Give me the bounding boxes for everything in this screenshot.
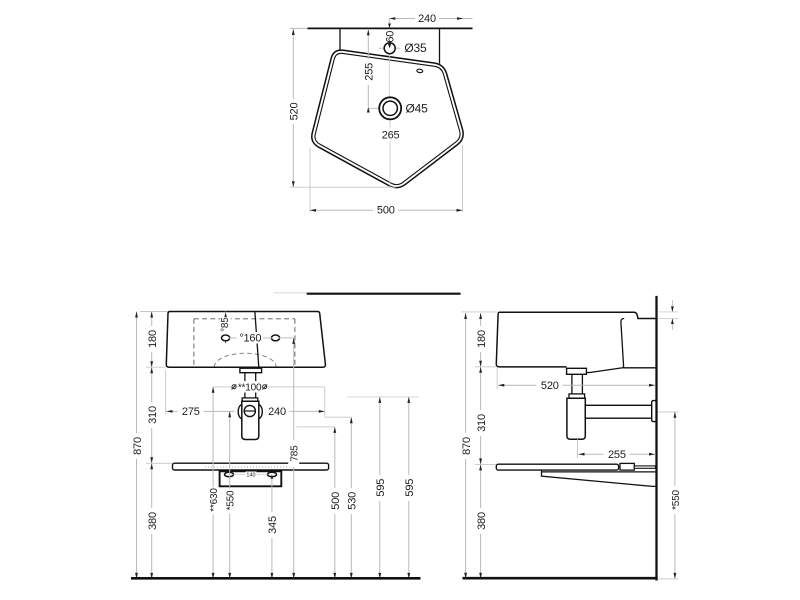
svg-text:310: 310 (147, 406, 159, 424)
svg-text:520: 520 (541, 380, 559, 392)
svg-text:380: 380 (476, 512, 488, 530)
svg-text:870: 870 (132, 437, 144, 455)
svg-text:785: 785 (290, 445, 301, 462)
svg-text:180: 180 (147, 330, 159, 348)
svg-text:520: 520 (289, 103, 301, 121)
svg-text:265: 265 (382, 129, 400, 141)
svg-text:345: 345 (267, 516, 279, 534)
svg-text:240: 240 (268, 406, 286, 418)
svg-text:Ø45: Ø45 (406, 102, 429, 116)
svg-text:500: 500 (377, 205, 395, 217)
svg-text:240: 240 (418, 13, 436, 25)
svg-text:60: 60 (385, 31, 397, 43)
svg-text:255: 255 (364, 63, 376, 81)
svg-text:**100: **100 (238, 382, 262, 393)
svg-text:**630: **630 (209, 488, 220, 512)
svg-text:595: 595 (404, 479, 416, 497)
svg-text:°160: °160 (239, 333, 261, 345)
svg-text:*550: *550 (226, 490, 237, 510)
svg-text:530: 530 (347, 492, 359, 510)
svg-text:Ø35: Ø35 (404, 41, 427, 55)
svg-text:310: 310 (476, 414, 488, 432)
svg-text:870: 870 (461, 437, 473, 455)
svg-text:595: 595 (375, 479, 387, 497)
svg-text:*550: *550 (671, 489, 682, 509)
svg-text:275: 275 (182, 406, 200, 418)
svg-text:380: 380 (147, 512, 159, 530)
svg-text:500: 500 (330, 492, 342, 510)
svg-text:°85: °85 (220, 317, 231, 332)
svg-text:255: 255 (608, 449, 626, 461)
svg-text:180: 180 (476, 330, 488, 348)
svg-text:140: 140 (246, 473, 255, 479)
